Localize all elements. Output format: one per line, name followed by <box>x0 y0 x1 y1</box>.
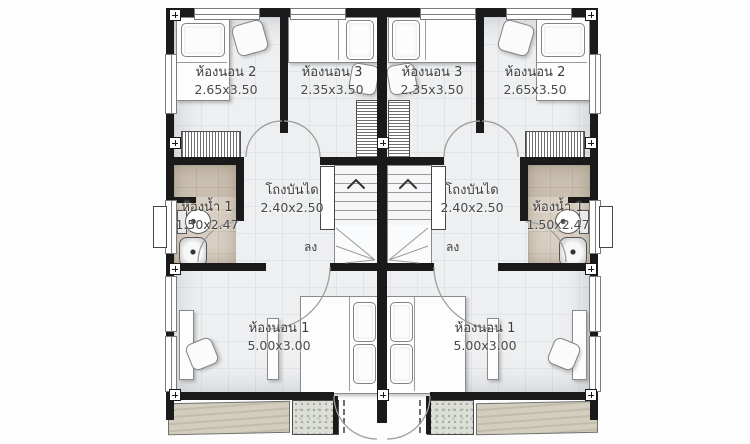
exterior-wall-bottom-right <box>430 392 598 400</box>
window-bedroom3-right-top <box>420 8 476 20</box>
room-label-bathroom-right: ห้องน้ำ 1 1.50x2.47 <box>526 199 589 233</box>
wall-bathroom-top-right <box>520 157 598 165</box>
balcony-divider-left <box>343 400 345 433</box>
bed-sheet-line <box>177 62 227 63</box>
shower-area-right <box>528 165 590 197</box>
bed-sheet-line <box>425 18 426 60</box>
column-marker <box>377 389 389 401</box>
stair-down-label-right: ลง <box>446 238 459 257</box>
room-size: 2.65x3.50 <box>194 82 257 99</box>
room-size: 2.35x3.50 <box>300 82 363 99</box>
wall-under-stair <box>330 263 434 271</box>
window-bedroom1-right-1 <box>589 276 601 332</box>
door-arc-balcony-left <box>334 396 377 439</box>
balcony-floor-left <box>292 400 339 435</box>
wall-bedroom1-top-left <box>166 263 266 271</box>
floor-plan: ห้องนอน 2 2.65x3.50 ห้องนอน 3 2.35x3.50 … <box>0 0 750 444</box>
room-name: ห้องน้ำ 1 <box>526 199 589 217</box>
wardrobe-bedroom2-right <box>525 131 585 158</box>
window-sill-left <box>153 206 167 248</box>
party-wall-center <box>377 8 387 423</box>
column-marker <box>169 137 181 149</box>
wall-stair-top <box>320 157 444 165</box>
room-size: 2.40x2.50 <box>260 200 323 217</box>
pillow-bedroom1-left <box>353 344 376 384</box>
wardrobe-bedroom3-left <box>356 100 378 158</box>
wall-bedroom2-3-left <box>280 8 288 133</box>
room-name: โถงบันได <box>440 182 503 200</box>
room-name: โถงบันได <box>260 182 323 200</box>
pillow-bedroom2-left <box>181 23 225 57</box>
column-marker <box>169 389 181 401</box>
wardrobe-bedroom3-right <box>388 100 410 158</box>
room-size: 5.00x3.00 <box>453 338 516 355</box>
bed-sheet-line <box>349 297 350 391</box>
bed-sheet-line <box>338 18 339 60</box>
balcony-awning-left <box>168 401 290 436</box>
room-label-bedroom3-right: ห้องนอน 3 2.35x3.50 <box>400 64 463 98</box>
wall-bedroom1-top-right <box>498 263 598 271</box>
shower-area-left <box>174 165 236 197</box>
window-bedroom3-left-top <box>290 8 346 20</box>
column-marker <box>585 263 597 275</box>
exterior-wall-bottom-left <box>166 392 334 400</box>
room-name: ห้องน้ำ 1 <box>175 199 238 217</box>
pillow-bedroom2-right <box>541 23 585 57</box>
stair-winder-left <box>334 225 379 263</box>
room-label-bedroom1-left: ห้องนอน 1 5.00x3.00 <box>247 320 310 354</box>
stair-flight-right <box>387 165 432 227</box>
window-bedroom2-left-side <box>165 54 177 114</box>
wall-bedroom2-3-right <box>476 8 484 133</box>
stair-down-label-left: ลง <box>304 238 317 257</box>
window-bedroom2-right-top <box>506 8 572 20</box>
room-label-stair-hall-left: โถงบันได 2.40x2.50 <box>260 182 323 216</box>
room-label-bedroom2-right: ห้องนอน 2 2.65x3.50 <box>503 64 566 98</box>
window-bedroom1-left-1 <box>165 276 177 332</box>
pillow-bedroom1-right <box>390 302 413 342</box>
column-marker <box>377 137 389 149</box>
room-label-bedroom3-left: ห้องนอน 3 2.35x3.50 <box>300 64 363 98</box>
door-arc-balcony-right <box>387 396 430 439</box>
balcony-awning-right <box>476 401 598 436</box>
column-marker <box>585 137 597 149</box>
pillow-bedroom3-right <box>392 20 420 60</box>
bed-sheet-line <box>414 297 415 391</box>
room-size: 1.50x2.47 <box>526 217 589 234</box>
room-name: ห้องนอน 1 <box>453 320 516 338</box>
balcony-wall-stub-left <box>333 396 338 434</box>
window-bedroom2-right-side <box>589 54 601 114</box>
column-marker <box>169 9 181 21</box>
balcony-wall-stub-right <box>426 396 431 434</box>
room-name: ห้องนอน 2 <box>503 64 566 82</box>
window-bedroom1-right-2 <box>589 336 601 392</box>
window-sill-right <box>599 206 613 248</box>
room-label-bathroom-left: ห้องน้ำ 1 1.50x2.47 <box>175 199 238 233</box>
room-size: 2.65x3.50 <box>503 82 566 99</box>
room-label-bedroom2-left: ห้องนอน 2 2.65x3.50 <box>194 64 257 98</box>
column-marker <box>169 263 181 275</box>
room-name: ห้องนอน 3 <box>300 64 363 82</box>
wardrobe-bedroom2-left <box>181 131 241 158</box>
column-marker <box>585 9 597 21</box>
column-marker <box>585 389 597 401</box>
stair-winder-right <box>387 225 432 263</box>
window-bedroom2-left-top <box>194 8 260 20</box>
window-bedroom1-left-2 <box>165 336 177 392</box>
room-label-bedroom1-right: ห้องนอน 1 5.00x3.00 <box>453 320 516 354</box>
stair-flight-left <box>334 165 379 227</box>
pillow-bedroom3-left <box>346 20 374 60</box>
pillow-bedroom1-right <box>390 344 413 384</box>
room-size: 2.40x2.50 <box>440 200 503 217</box>
wall-bathroom-top-left <box>166 157 244 165</box>
pillow-bedroom1-left <box>353 302 376 342</box>
room-name: ห้องนอน 1 <box>247 320 310 338</box>
room-size: 1.50x2.47 <box>175 217 238 234</box>
room-name: ห้องนอน 2 <box>194 64 257 82</box>
room-size: 2.35x3.50 <box>400 82 463 99</box>
room-label-stair-hall-right: โถงบันได 2.40x2.50 <box>440 182 503 216</box>
room-size: 5.00x3.00 <box>247 338 310 355</box>
bed-sheet-line <box>537 62 587 63</box>
balcony-floor-right <box>427 400 474 435</box>
balcony-divider-right <box>419 400 421 433</box>
room-name: ห้องนอน 3 <box>400 64 463 82</box>
